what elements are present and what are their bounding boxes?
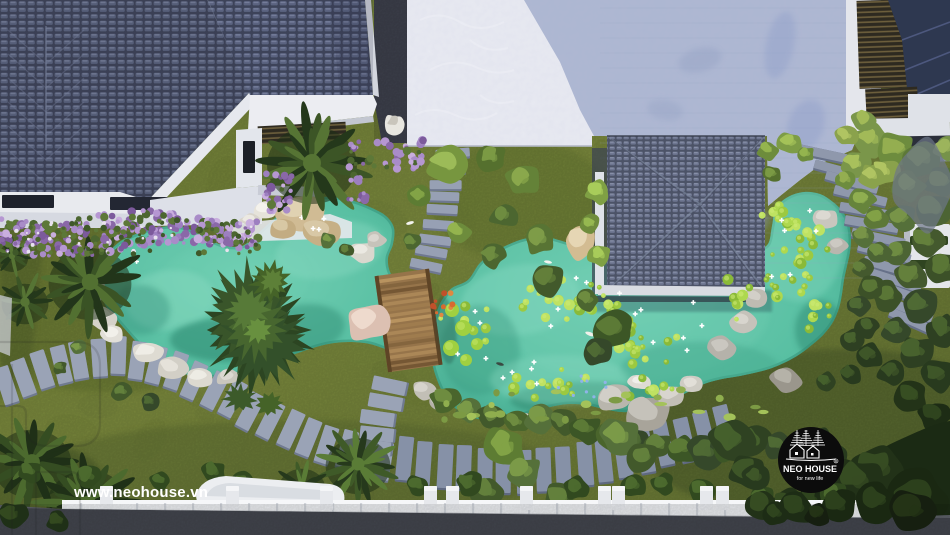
svg-text:for new life: for new life [797, 476, 824, 482]
svg-text:NEO HOUSE: NEO HOUSE [783, 464, 837, 474]
svg-text:www.neohouse.vn: www.neohouse.vn [73, 484, 208, 501]
